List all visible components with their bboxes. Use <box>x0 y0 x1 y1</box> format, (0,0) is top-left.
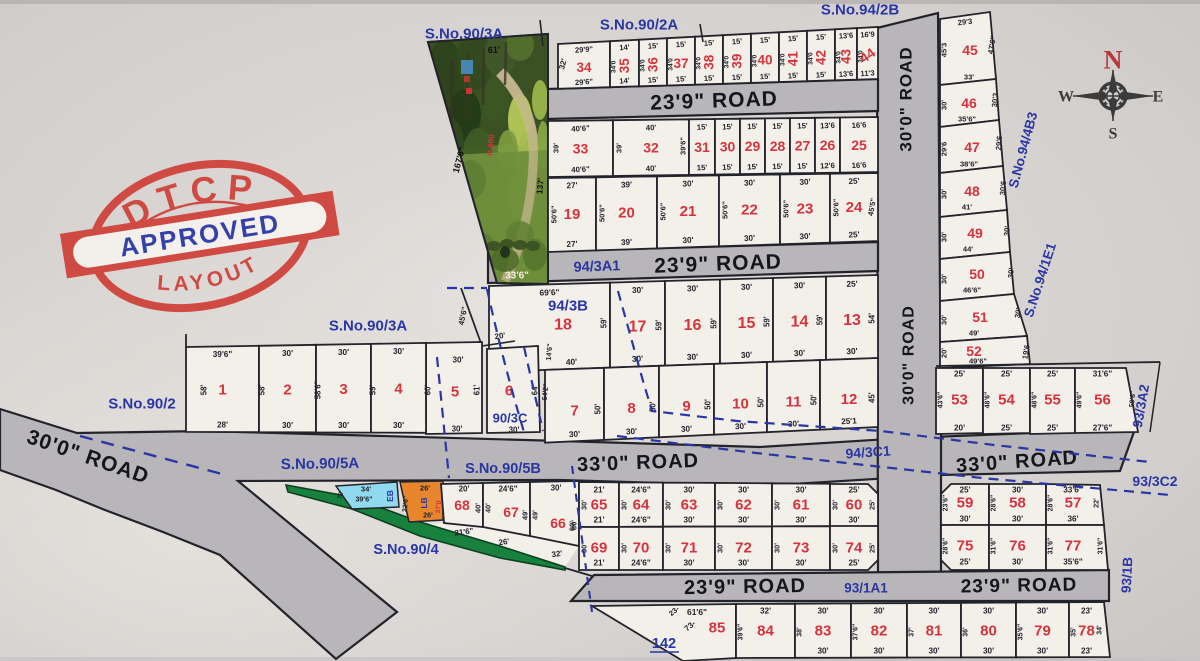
svg-text:21: 21 <box>680 203 697 220</box>
svg-text:74: 74 <box>846 540 863 557</box>
svg-text:57: 57 <box>1065 495 1082 512</box>
svg-text:56: 56 <box>1094 392 1111 409</box>
svg-text:59: 59 <box>957 495 974 512</box>
svg-text:25': 25' <box>848 177 860 187</box>
svg-text:80: 80 <box>980 623 997 640</box>
svg-text:39': 39' <box>621 180 633 190</box>
svg-text:35': 35' <box>1071 627 1078 637</box>
svg-text:85: 85 <box>709 620 726 637</box>
svg-text:38'6": 38'6" <box>960 160 978 169</box>
svg-text:9: 9 <box>682 398 690 415</box>
svg-text:39'6": 39'6" <box>738 624 745 641</box>
svg-text:55: 55 <box>1044 392 1061 409</box>
svg-text:16: 16 <box>684 317 702 334</box>
svg-text:59': 59' <box>655 320 664 331</box>
svg-text:15': 15' <box>797 161 808 171</box>
svg-text:30': 30' <box>848 516 859 525</box>
svg-text:58': 58' <box>200 385 209 396</box>
svg-text:13'6: 13'6 <box>838 69 853 79</box>
svg-text:14'6": 14'6" <box>544 343 554 361</box>
svg-text:66: 66 <box>550 515 566 531</box>
svg-text:30': 30' <box>817 647 828 656</box>
svg-text:90/3C: 90/3C <box>493 411 528 426</box>
svg-text:37: 37 <box>673 56 688 71</box>
svg-text:70: 70 <box>633 540 650 557</box>
svg-text:15': 15' <box>732 72 743 82</box>
svg-text:60: 60 <box>846 497 863 514</box>
svg-text:94/3B: 94/3B <box>548 298 588 315</box>
svg-text:28'6": 28'6" <box>1048 495 1055 512</box>
svg-text:8: 8 <box>627 400 635 417</box>
svg-text:59': 59' <box>710 318 719 329</box>
svg-text:48'6": 48'6" <box>985 392 992 409</box>
svg-text:30': 30' <box>928 607 939 616</box>
svg-text:29'6: 29'6 <box>994 135 1004 150</box>
svg-text:33: 33 <box>573 141 589 157</box>
svg-text:34'0: 34'0 <box>724 55 731 68</box>
svg-text:30': 30' <box>795 559 806 568</box>
svg-text:60': 60' <box>568 521 577 531</box>
svg-text:29'9": 29'9" <box>575 44 594 54</box>
svg-text:30': 30' <box>632 285 644 295</box>
svg-text:22'6": 22'6" <box>402 496 410 513</box>
svg-text:30': 30' <box>1037 647 1048 656</box>
svg-text:43'6": 43'6" <box>938 392 945 409</box>
svg-text:30': 30' <box>580 500 589 510</box>
svg-text:15': 15' <box>747 122 758 132</box>
svg-text:34'0: 34'0 <box>808 52 815 65</box>
svg-text:27': 27' <box>566 239 578 249</box>
svg-text:3: 3 <box>339 381 347 398</box>
svg-text:23'9" ROAD: 23'9" ROAD <box>961 574 1078 597</box>
svg-text:34'0: 34'0 <box>611 60 618 73</box>
svg-text:15': 15' <box>760 72 771 82</box>
svg-text:20': 20' <box>954 424 965 433</box>
svg-text:35'6": 35'6" <box>1063 558 1083 567</box>
svg-text:63: 63 <box>681 497 698 514</box>
svg-text:32': 32' <box>760 607 771 616</box>
svg-text:14': 14' <box>619 43 630 53</box>
svg-text:23'6": 23'6" <box>943 495 950 512</box>
svg-text:25': 25' <box>959 486 970 495</box>
svg-text:84: 84 <box>757 623 774 640</box>
svg-text:49': 49' <box>531 510 540 520</box>
svg-text:58: 58 <box>1009 495 1026 512</box>
svg-text:73: 73 <box>793 540 810 557</box>
svg-text:30'0" ROAD: 30'0" ROAD <box>901 305 918 405</box>
svg-text:15': 15' <box>704 73 715 83</box>
svg-text:15': 15' <box>704 38 715 48</box>
svg-text:37'6": 37'6" <box>853 624 860 641</box>
svg-text:50'6": 50'6" <box>598 204 607 222</box>
svg-text:20': 20' <box>494 331 506 341</box>
svg-text:30': 30' <box>873 607 884 616</box>
svg-text:72: 72 <box>735 540 752 557</box>
svg-text:30': 30' <box>940 315 949 325</box>
svg-text:94/3C1: 94/3C1 <box>845 442 891 461</box>
svg-text:45'3: 45'3 <box>940 43 949 57</box>
svg-text:21': 21' <box>593 486 604 495</box>
svg-text:50'6": 50'6" <box>832 198 841 216</box>
svg-text:15': 15' <box>772 121 783 131</box>
svg-text:24: 24 <box>846 199 863 216</box>
svg-text:32: 32 <box>643 140 659 156</box>
svg-text:15': 15' <box>676 40 687 50</box>
svg-text:30': 30' <box>1006 267 1016 278</box>
svg-text:11: 11 <box>786 394 802 411</box>
svg-text:30': 30' <box>687 351 699 362</box>
svg-text:N: N <box>1104 46 1123 75</box>
svg-text:45: 45 <box>962 42 978 58</box>
svg-text:30': 30' <box>716 500 725 510</box>
svg-text:137': 137' <box>534 177 545 194</box>
svg-text:31'6": 31'6" <box>1093 370 1113 379</box>
svg-text:18: 18 <box>554 317 572 334</box>
svg-text:10: 10 <box>732 396 749 413</box>
svg-text:39'6": 39'6" <box>213 350 233 359</box>
svg-text:83: 83 <box>815 623 832 640</box>
svg-text:40': 40' <box>474 503 483 513</box>
svg-text:39'6": 39'6" <box>355 495 372 504</box>
svg-text:15': 15' <box>788 71 799 81</box>
svg-text:30': 30' <box>509 426 520 435</box>
svg-text:15': 15' <box>648 41 659 51</box>
svg-text:69: 69 <box>591 540 608 557</box>
svg-text:30': 30' <box>683 486 694 495</box>
svg-text:30': 30' <box>940 189 949 199</box>
svg-text:26': 26' <box>420 484 430 493</box>
svg-text:19: 19 <box>564 206 581 223</box>
svg-text:S: S <box>1109 126 1118 143</box>
svg-text:34'0: 34'0 <box>780 53 787 66</box>
svg-text:20': 20' <box>940 348 949 358</box>
svg-text:64: 64 <box>633 497 650 514</box>
svg-text:30': 30' <box>817 607 828 616</box>
svg-text:94/3A1: 94/3A1 <box>573 258 620 276</box>
svg-text:49': 49' <box>969 329 979 338</box>
svg-text:30': 30' <box>1012 515 1023 524</box>
svg-text:30': 30' <box>983 607 994 616</box>
svg-text:17: 17 <box>629 319 647 336</box>
svg-text:30': 30' <box>1012 558 1023 567</box>
svg-text:15': 15' <box>772 162 783 172</box>
svg-text:26': 26' <box>423 511 433 520</box>
svg-text:30': 30' <box>664 543 673 553</box>
svg-text:15': 15' <box>697 122 708 132</box>
svg-text:61'6": 61'6" <box>687 607 707 617</box>
svg-text:39'6": 39'6" <box>679 137 688 155</box>
svg-text:15': 15' <box>760 35 771 45</box>
svg-text:36': 36' <box>963 627 970 637</box>
svg-text:62: 62 <box>735 497 752 514</box>
svg-text:4: 4 <box>394 381 403 398</box>
svg-text:30': 30' <box>664 500 673 510</box>
svg-text:E: E <box>1153 89 1164 106</box>
svg-text:59': 59' <box>369 385 378 396</box>
svg-text:30': 30' <box>794 348 806 359</box>
svg-text:30': 30' <box>569 430 581 440</box>
svg-text:EB: EB <box>385 490 395 502</box>
svg-text:15': 15' <box>816 70 827 80</box>
svg-text:S.No.90/2: S.No.90/2 <box>108 396 176 413</box>
svg-text:26: 26 <box>820 137 836 153</box>
svg-text:69'6": 69'6" <box>539 287 559 298</box>
svg-text:27'6": 27'6" <box>1093 424 1113 433</box>
svg-text:32': 32' <box>551 549 563 559</box>
svg-text:16'6: 16'6 <box>851 160 867 170</box>
svg-text:31'6": 31'6" <box>991 538 998 555</box>
svg-text:28: 28 <box>770 138 786 154</box>
svg-text:34'0: 34'0 <box>836 51 843 64</box>
svg-text:24'6": 24'6" <box>631 486 651 495</box>
svg-text:27': 27' <box>566 181 578 191</box>
svg-text:38': 38' <box>797 627 804 637</box>
svg-text:59': 59' <box>816 315 825 326</box>
svg-text:49'6": 49'6" <box>969 357 987 366</box>
svg-text:25'1: 25'1 <box>841 416 858 426</box>
svg-text:30': 30' <box>940 100 949 110</box>
svg-text:30': 30' <box>682 236 694 246</box>
svg-text:30': 30' <box>683 516 694 525</box>
svg-text:50'6": 50'6" <box>721 201 730 219</box>
svg-text:30': 30' <box>744 233 756 243</box>
svg-text:30': 30' <box>831 500 840 510</box>
svg-text:30': 30' <box>1002 225 1012 236</box>
svg-text:34: 34 <box>576 60 592 75</box>
svg-text:S.No.94/2B: S.No.94/2B <box>821 2 900 19</box>
svg-text:93/1B: 93/1B <box>1119 556 1136 593</box>
svg-text:21': 21' <box>593 516 604 525</box>
svg-text:S.No.90/5A: S.No.90/5A <box>281 455 360 473</box>
svg-text:24'6": 24'6" <box>498 485 517 494</box>
svg-text:30': 30' <box>620 500 629 510</box>
svg-text:30': 30' <box>738 516 749 525</box>
svg-text:15': 15' <box>788 34 799 44</box>
svg-text:30': 30' <box>393 421 404 430</box>
svg-text:67: 67 <box>503 504 519 520</box>
svg-text:77: 77 <box>1065 538 1082 555</box>
svg-text:25': 25' <box>868 500 877 510</box>
svg-text:61': 61' <box>473 385 482 396</box>
svg-text:30': 30' <box>799 232 811 242</box>
svg-text:53: 53 <box>951 392 968 409</box>
svg-text:25: 25 <box>851 137 867 153</box>
svg-text:46'6": 46'6" <box>963 286 981 295</box>
svg-text:40'6": 40'6" <box>571 165 590 175</box>
svg-text:11'3: 11'3 <box>860 68 875 78</box>
svg-text:81: 81 <box>926 623 943 640</box>
svg-text:26': 26' <box>498 537 510 547</box>
svg-text:30': 30' <box>983 647 994 656</box>
svg-text:46: 46 <box>961 95 977 111</box>
svg-text:30': 30' <box>744 178 756 188</box>
svg-text:30': 30' <box>338 421 349 430</box>
svg-text:28': 28' <box>217 421 228 430</box>
svg-text:40': 40' <box>566 356 578 367</box>
svg-text:40'6": 40'6" <box>571 124 590 134</box>
svg-text:29'6": 29'6" <box>575 77 594 87</box>
svg-text:47: 47 <box>964 139 980 155</box>
svg-text:28'6": 28'6" <box>943 538 950 555</box>
svg-text:30': 30' <box>551 484 562 493</box>
svg-text:23': 23' <box>1081 647 1092 656</box>
svg-text:50'6": 50'6" <box>550 205 559 223</box>
svg-text:40': 40' <box>646 123 657 133</box>
svg-text:1: 1 <box>218 382 226 399</box>
svg-text:54': 54' <box>868 313 877 324</box>
svg-text:39': 39' <box>615 143 624 153</box>
svg-text:30': 30' <box>940 274 949 284</box>
svg-text:15': 15' <box>722 163 733 173</box>
svg-text:61': 61' <box>488 45 500 55</box>
svg-text:30': 30' <box>794 280 806 290</box>
svg-text:13'6: 13'6 <box>820 121 836 131</box>
svg-text:24'6": 24'6" <box>631 516 651 525</box>
svg-text:30': 30' <box>282 421 293 430</box>
svg-text:49: 49 <box>967 225 983 241</box>
svg-text:LB: LB <box>419 497 429 508</box>
svg-text:30': 30' <box>1037 607 1048 616</box>
svg-text:50: 50 <box>969 266 985 282</box>
svg-text:71: 71 <box>681 540 698 557</box>
svg-text:21': 21' <box>593 559 604 568</box>
svg-text:59': 59' <box>600 318 609 329</box>
svg-text:40: 40 <box>757 52 772 67</box>
svg-text:36': 36' <box>1067 515 1078 524</box>
svg-text:30': 30' <box>620 543 629 553</box>
svg-text:34'0: 34'0 <box>668 58 675 71</box>
svg-text:30': 30' <box>626 427 638 437</box>
svg-text:P-600: P-600 <box>486 133 497 156</box>
svg-text:25': 25' <box>1001 424 1012 433</box>
svg-text:64'2": 64'2" <box>540 383 550 401</box>
svg-text:30': 30' <box>773 500 782 510</box>
svg-text:30': 30' <box>831 543 840 553</box>
svg-text:12'6: 12'6 <box>820 161 836 171</box>
svg-text:30': 30' <box>795 486 806 495</box>
svg-text:50'6": 50'6" <box>782 199 791 217</box>
svg-text:142: 142 <box>652 636 676 652</box>
svg-text:48: 48 <box>964 183 980 199</box>
svg-text:34'0: 34'0 <box>858 50 865 63</box>
svg-text:25': 25' <box>868 543 877 553</box>
svg-text:25': 25' <box>1047 424 1058 433</box>
svg-text:30': 30' <box>682 179 694 189</box>
svg-text:58': 58' <box>258 385 267 396</box>
svg-text:42: 42 <box>814 50 829 65</box>
svg-text:29: 29 <box>745 138 761 154</box>
svg-text:37': 37' <box>909 627 916 637</box>
svg-text:5: 5 <box>451 384 459 401</box>
svg-text:30': 30' <box>873 647 884 656</box>
svg-text:31'6": 31'6" <box>1048 538 1055 555</box>
svg-text:25': 25' <box>848 486 859 495</box>
svg-text:30'0" ROAD: 30'0" ROAD <box>897 46 916 151</box>
svg-text:36: 36 <box>646 57 661 73</box>
svg-text:23'9" ROAD: 23'9" ROAD <box>654 250 782 277</box>
svg-text:58'6": 58'6" <box>314 380 323 399</box>
svg-text:54: 54 <box>998 392 1015 409</box>
svg-text:15: 15 <box>738 315 756 332</box>
svg-text:35: 35 <box>617 58 632 74</box>
svg-text:34': 34' <box>1097 625 1104 635</box>
svg-text:41': 41' <box>962 203 972 212</box>
svg-text:15': 15' <box>747 162 758 172</box>
svg-text:49': 49' <box>521 510 530 520</box>
svg-text:30': 30' <box>959 515 970 524</box>
svg-text:35'6": 35'6" <box>1018 624 1025 641</box>
svg-text:25': 25' <box>959 558 970 567</box>
svg-text:30': 30' <box>452 425 463 434</box>
svg-text:30': 30' <box>338 348 349 357</box>
svg-text:30': 30' <box>687 283 699 293</box>
svg-text:34'0: 34'0 <box>640 59 647 72</box>
svg-text:30': 30' <box>716 543 725 553</box>
svg-text:79: 79 <box>1034 623 1051 640</box>
svg-text:45': 45' <box>868 392 877 403</box>
svg-text:14': 14' <box>619 76 630 86</box>
svg-text:50': 50' <box>594 404 603 415</box>
svg-text:15': 15' <box>797 121 808 131</box>
svg-text:23': 23' <box>1081 607 1092 616</box>
svg-text:38: 38 <box>702 54 717 70</box>
svg-text:20': 20' <box>459 485 470 494</box>
svg-text:15': 15' <box>722 122 733 132</box>
svg-text:15': 15' <box>816 32 827 42</box>
svg-text:25': 25' <box>954 370 965 379</box>
svg-text:25': 25' <box>1047 370 1058 379</box>
svg-text:30'3: 30'3 <box>990 92 1000 107</box>
svg-text:15': 15' <box>697 163 708 173</box>
svg-text:13: 13 <box>843 312 861 329</box>
svg-text:S.No.90/3A: S.No.90/3A <box>425 26 504 43</box>
svg-text:78: 78 <box>1078 623 1095 640</box>
svg-text:30': 30' <box>773 543 782 553</box>
svg-text:16'6: 16'6 <box>851 120 867 130</box>
svg-text:15': 15' <box>732 37 743 47</box>
svg-text:S.No.90/2A: S.No.90/2A <box>600 17 679 34</box>
svg-text:50': 50' <box>704 399 713 410</box>
svg-text:30': 30' <box>735 422 747 432</box>
svg-text:93/1A1: 93/1A1 <box>844 581 888 596</box>
svg-text:49'6": 49'6" <box>1077 392 1084 409</box>
svg-text:93/3C2: 93/3C2 <box>1132 473 1177 489</box>
svg-text:23'9" ROAD: 23'9" ROAD <box>650 87 778 114</box>
svg-text:48'6": 48'6" <box>1032 392 1039 409</box>
svg-text:30': 30' <box>452 356 463 365</box>
svg-text:31'6": 31'6" <box>1098 538 1105 555</box>
svg-text:20: 20 <box>618 205 635 222</box>
svg-text:S.No.90/3A: S.No.90/3A <box>329 318 408 335</box>
svg-text:30': 30' <box>741 349 753 360</box>
svg-text:29'3: 29'3 <box>957 17 972 27</box>
svg-text:34'0: 34'0 <box>752 54 759 67</box>
svg-text:34'0: 34'0 <box>696 57 703 70</box>
svg-text:40': 40' <box>646 164 657 174</box>
svg-text:40': 40' <box>484 503 493 513</box>
svg-text:30': 30' <box>738 559 749 568</box>
svg-text:16'9: 16'9 <box>860 30 875 40</box>
svg-text:25': 25' <box>1001 370 1012 379</box>
svg-text:39: 39 <box>730 54 745 69</box>
svg-text:50'6": 50'6" <box>659 202 668 220</box>
svg-text:30': 30' <box>741 282 753 292</box>
svg-text:33'0" ROAD: 33'0" ROAD <box>577 450 700 476</box>
svg-text:44': 44' <box>963 245 973 254</box>
svg-text:S.No.90/5B: S.No.90/5B <box>465 461 541 477</box>
svg-text:24'6": 24'6" <box>631 559 651 568</box>
svg-text:30': 30' <box>738 486 749 495</box>
